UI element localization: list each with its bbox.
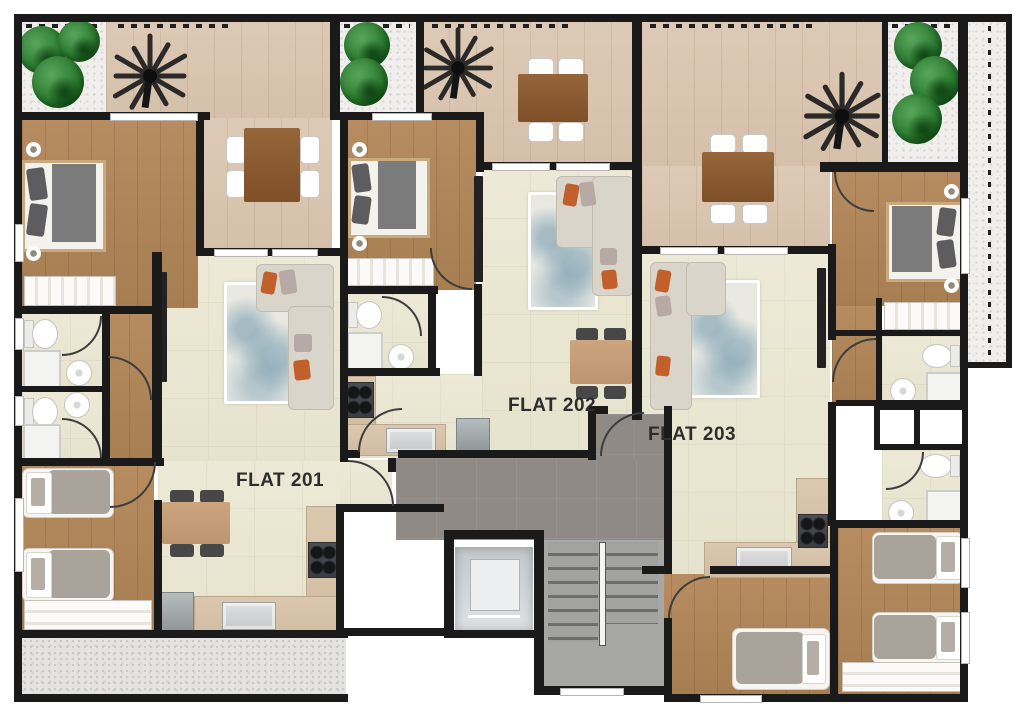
tv bbox=[474, 176, 483, 282]
wall bbox=[642, 566, 670, 574]
wall bbox=[958, 14, 968, 170]
palm-tree-icon bbox=[100, 26, 200, 126]
wall bbox=[340, 368, 440, 376]
wall bbox=[830, 520, 968, 528]
toilet bbox=[920, 454, 952, 478]
wall bbox=[820, 162, 968, 172]
wall bbox=[154, 500, 162, 636]
elevator-shaft-wall bbox=[444, 530, 544, 539]
chair bbox=[558, 122, 584, 142]
window bbox=[15, 498, 24, 572]
sofa bbox=[288, 306, 334, 410]
elevator-shaft-wall bbox=[444, 630, 544, 638]
bed-blanket bbox=[736, 632, 804, 684]
round-sink bbox=[388, 344, 414, 370]
toilet bbox=[356, 301, 382, 329]
wall bbox=[828, 244, 836, 340]
sofa-pillow bbox=[601, 269, 618, 289]
sofa-pillow bbox=[655, 295, 673, 317]
window bbox=[272, 249, 318, 257]
bed-blanket bbox=[48, 550, 110, 598]
elevator-shaft-wall bbox=[534, 530, 544, 690]
shower bbox=[23, 350, 61, 388]
wall bbox=[830, 520, 838, 696]
bed-pillow-inner bbox=[31, 558, 45, 590]
wall bbox=[966, 362, 1008, 368]
stove bbox=[308, 542, 338, 578]
chair bbox=[528, 122, 554, 142]
wardrobe bbox=[842, 662, 962, 692]
fridge bbox=[456, 418, 490, 454]
window bbox=[15, 224, 24, 262]
wall bbox=[476, 112, 484, 172]
dining-table bbox=[570, 340, 632, 384]
chair bbox=[200, 544, 224, 557]
wardrobe bbox=[24, 600, 152, 630]
stair-flight-left bbox=[548, 542, 598, 642]
bed-blanket bbox=[52, 164, 96, 242]
nightstand-lamp bbox=[944, 278, 959, 293]
terrace-edge-marks bbox=[650, 24, 818, 28]
floor-plan: FLAT 201 FLAT 202 FLAT 203 bbox=[0, 0, 1024, 716]
dining-table bbox=[244, 128, 300, 202]
wall bbox=[474, 284, 482, 376]
stove bbox=[798, 514, 828, 548]
kitchen-sink bbox=[222, 602, 276, 630]
wall bbox=[14, 694, 348, 702]
chair bbox=[300, 170, 320, 198]
shared-corridor bbox=[396, 458, 664, 540]
elevator-shaft-wall bbox=[444, 530, 454, 638]
wall bbox=[428, 288, 436, 374]
shrub-icon bbox=[340, 58, 388, 106]
wardrobe bbox=[24, 276, 116, 306]
shower bbox=[347, 332, 383, 370]
window bbox=[560, 688, 624, 696]
chair bbox=[742, 204, 768, 224]
window bbox=[15, 318, 24, 350]
elevator-back-panel bbox=[470, 559, 520, 611]
bed-blanket bbox=[48, 470, 110, 514]
utility-shaft bbox=[920, 410, 962, 444]
toilet bbox=[32, 319, 58, 349]
palm-tree-icon bbox=[790, 64, 894, 168]
shrub-icon bbox=[58, 20, 100, 62]
sofa-pillow bbox=[278, 269, 297, 295]
wall bbox=[632, 14, 642, 420]
toilet bbox=[922, 344, 952, 368]
sofa-pillow bbox=[294, 334, 312, 352]
stair-flight-right bbox=[606, 542, 658, 624]
wall bbox=[14, 14, 1012, 22]
wall bbox=[14, 630, 348, 638]
wall bbox=[882, 14, 888, 168]
stove bbox=[345, 382, 374, 418]
bed-pillow-inner bbox=[941, 542, 955, 572]
flat-201-label: FLAT 201 bbox=[236, 470, 324, 492]
wardrobe bbox=[884, 302, 966, 330]
shower bbox=[23, 424, 61, 460]
nightstand-lamp bbox=[26, 142, 41, 157]
palm-tree-icon bbox=[410, 20, 506, 116]
chair bbox=[226, 170, 246, 198]
bed-blanket bbox=[892, 206, 932, 272]
wall bbox=[1006, 14, 1012, 368]
dining-table bbox=[162, 502, 230, 544]
chair bbox=[710, 204, 736, 224]
wall bbox=[828, 402, 836, 526]
window bbox=[492, 163, 550, 171]
gravel-strip-right bbox=[966, 14, 1008, 364]
wall bbox=[14, 306, 162, 314]
wall bbox=[710, 566, 832, 574]
round-sink bbox=[64, 392, 90, 418]
wardrobe bbox=[346, 258, 434, 286]
sofa bbox=[686, 262, 726, 316]
chair bbox=[300, 136, 320, 164]
window bbox=[372, 113, 432, 121]
bed-pillow-inner bbox=[807, 641, 819, 675]
toilet-tank bbox=[950, 345, 960, 367]
wall bbox=[336, 628, 448, 636]
window bbox=[214, 249, 268, 257]
wall bbox=[664, 618, 672, 696]
wall bbox=[596, 406, 608, 414]
window bbox=[961, 198, 970, 274]
wall bbox=[336, 504, 344, 634]
window bbox=[724, 247, 788, 255]
shrub-icon bbox=[32, 56, 84, 108]
wall bbox=[14, 386, 104, 392]
wall bbox=[836, 330, 966, 336]
dining-table bbox=[518, 74, 588, 122]
nightstand-lamp bbox=[26, 246, 41, 261]
window bbox=[556, 163, 610, 171]
gravel-edge-marks bbox=[988, 26, 991, 356]
bed-blanket bbox=[874, 535, 936, 579]
flat-203-label: FLAT 203 bbox=[648, 424, 736, 446]
tv bbox=[817, 268, 826, 368]
dining-table bbox=[702, 152, 774, 202]
chair bbox=[226, 136, 246, 164]
toilet bbox=[32, 397, 58, 427]
wall bbox=[152, 252, 162, 464]
sofa-pillow bbox=[655, 355, 671, 376]
chair bbox=[604, 386, 626, 399]
shower bbox=[926, 490, 964, 524]
nightstand-lamp bbox=[944, 184, 959, 199]
shrub-icon bbox=[892, 94, 942, 144]
nightstand-lamp bbox=[352, 236, 367, 251]
fridge bbox=[158, 592, 194, 634]
bed-pillow-inner bbox=[941, 622, 955, 652]
flat-202-label: FLAT 202 bbox=[508, 395, 596, 417]
stair-rail bbox=[599, 542, 606, 646]
toilet-tank bbox=[950, 455, 960, 477]
window bbox=[700, 695, 762, 703]
wall bbox=[876, 298, 882, 402]
wall bbox=[330, 14, 340, 120]
utility-shaft bbox=[880, 410, 914, 444]
window bbox=[660, 247, 718, 255]
gravel-path-bottom bbox=[16, 638, 346, 696]
chair bbox=[170, 544, 194, 557]
elevator-floor-line bbox=[468, 615, 520, 618]
round-sink bbox=[66, 360, 92, 386]
wall bbox=[416, 14, 424, 120]
bed-blanket bbox=[874, 615, 936, 659]
nightstand-lamp bbox=[352, 142, 367, 157]
window bbox=[15, 396, 24, 426]
sofa-pillow bbox=[293, 359, 311, 381]
bed-blanket bbox=[378, 161, 416, 229]
wall bbox=[388, 458, 396, 472]
chair bbox=[742, 134, 768, 154]
window bbox=[110, 113, 198, 121]
window bbox=[961, 612, 970, 664]
bed-pillow-inner bbox=[31, 478, 45, 506]
window bbox=[961, 538, 970, 588]
sofa-pillow bbox=[578, 181, 596, 207]
chair bbox=[710, 134, 736, 154]
wall bbox=[340, 286, 438, 294]
sofa-pillow bbox=[600, 248, 617, 265]
wall bbox=[196, 118, 204, 252]
wall bbox=[398, 450, 596, 458]
